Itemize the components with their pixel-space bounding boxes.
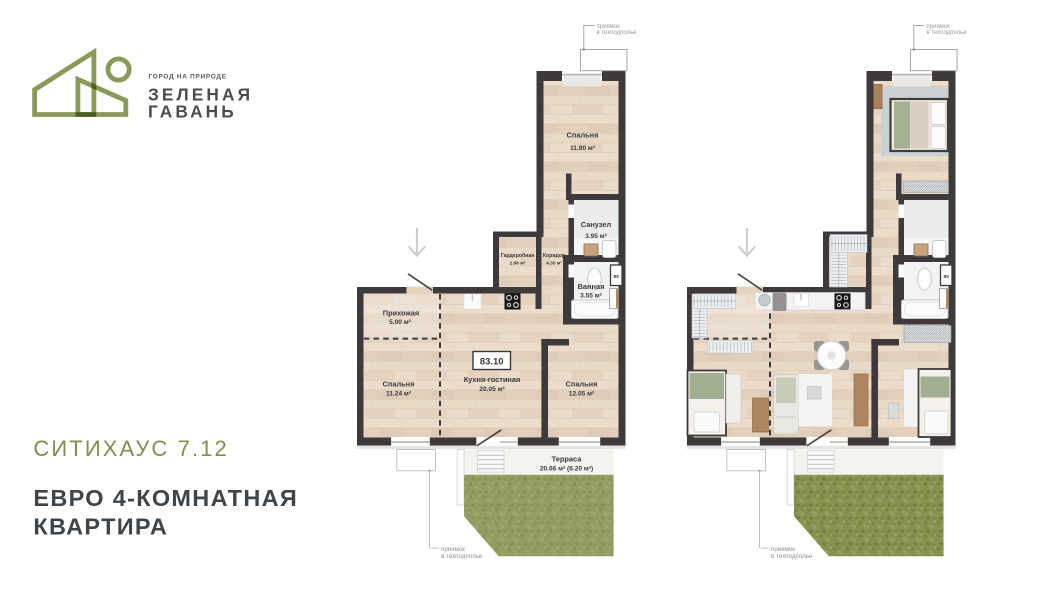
- svg-text:20.66 м² (6.20 м²): 20.66 м² (6.20 м²): [540, 466, 593, 473]
- svg-text:Санузел: Санузел: [581, 220, 612, 229]
- svg-text:Спальня: Спальня: [383, 380, 415, 389]
- svg-text:5.00 м²: 5.00 м²: [389, 319, 412, 326]
- svg-text:Гардеробная: Гардеробная: [501, 252, 535, 259]
- svg-text:4.30 м²: 4.30 м²: [546, 261, 562, 267]
- svg-text:Спальня: Спальня: [566, 380, 598, 389]
- svg-text:ГОРОД НА ПРИРОДЕ: ГОРОД НА ПРИРОДЕ: [149, 74, 227, 81]
- svg-text:11.24 м²: 11.24 м²: [386, 391, 412, 398]
- svg-text:20.05 м²: 20.05 м²: [479, 386, 505, 393]
- svg-text:Коридор: Коридор: [543, 253, 565, 259]
- svg-text:ГАВАНЬ: ГАВАНЬ: [148, 102, 237, 122]
- svg-text:Терраса: Терраса: [552, 455, 583, 464]
- svg-text:2.86 м²: 2.86 м²: [510, 261, 526, 267]
- svg-text:11.90 м²: 11.90 м²: [570, 145, 596, 152]
- svg-text:3.55 м²: 3.55 м²: [580, 293, 603, 300]
- svg-text:ЕВРО 4-КОМНАТНАЯ: ЕВРО 4-КОМНАТНАЯ: [33, 485, 298, 511]
- svg-text:Спальня: Спальня: [567, 131, 599, 140]
- svg-text:Ванная: Ванная: [578, 282, 605, 291]
- svg-text:3.95 м²: 3.95 м²: [585, 233, 608, 240]
- svg-text:12.05 м²: 12.05 м²: [569, 391, 595, 398]
- svg-text:Кухня-гостиная: Кухня-гостиная: [464, 375, 521, 384]
- svg-text:83.10: 83.10: [480, 357, 504, 368]
- svg-text:СИТИХАУС 7.12: СИТИХАУС 7.12: [33, 436, 228, 461]
- svg-text:КВАРТИРА: КВАРТИРА: [33, 514, 168, 540]
- svg-text:Прихожая: Прихожая: [383, 309, 419, 318]
